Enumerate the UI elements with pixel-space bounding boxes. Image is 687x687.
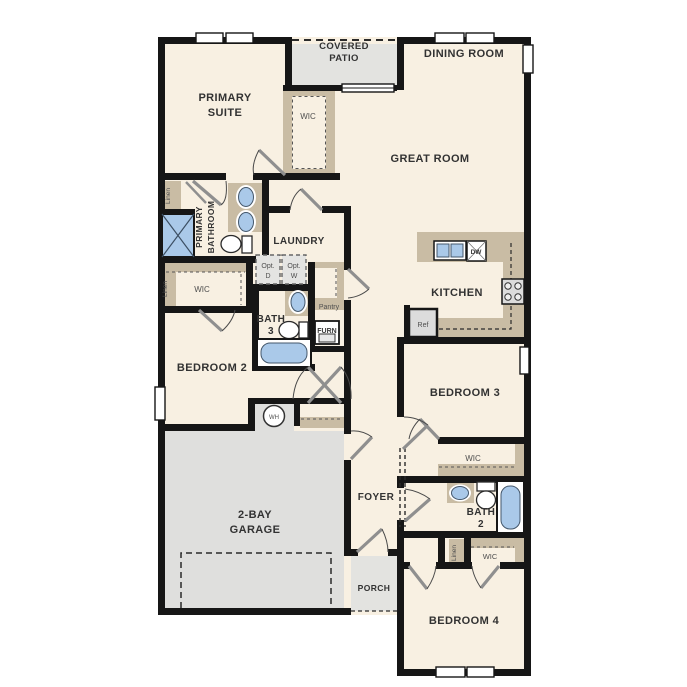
kitchen-counter-bottom [438, 318, 504, 337]
label-linen-wic2: Linen [162, 281, 169, 297]
label-garage-1: 2-BAY [238, 509, 272, 521]
label-primary-bathroom-2: BATHROOM [206, 201, 216, 254]
bath3-sink [289, 290, 308, 314]
wic3-side [515, 444, 524, 477]
window-dining-side [523, 45, 533, 73]
label-opt-washer-2: W [291, 273, 298, 280]
window-primary-2 [226, 33, 253, 43]
floor-plan: COVERED PATIO DINING ROOM GREAT ROOM PRI… [0, 0, 687, 687]
label-bath3-2: 3 [268, 326, 274, 337]
bath3-tub [257, 339, 311, 367]
label-garage-2: GARAGE [230, 524, 281, 536]
hall-closet-interior [300, 404, 344, 418]
window-primary-1 [196, 33, 223, 43]
primary-wic-interior [292, 96, 326, 169]
floor-plan-svg: COVERED PATIO DINING ROOM GREAT ROOM PRI… [0, 0, 687, 687]
label-bedroom4: BEDROOM 4 [429, 615, 500, 627]
primary-toilet [221, 236, 252, 254]
label-laundry: LAUNDRY [273, 236, 324, 247]
label-bath3-1: BATH [257, 314, 286, 325]
window-dining-2 [466, 33, 494, 43]
label-primary-suite-2: SUITE [208, 107, 242, 119]
pantry-interior [315, 268, 337, 298]
bath2-toilet [477, 482, 496, 509]
label-opt-dryer-2: D [265, 273, 270, 280]
label-water-heater: WH [269, 415, 279, 421]
window-bedroom4-2 [467, 667, 494, 677]
primary-shower [162, 214, 194, 257]
label-porch: PORCH [358, 583, 391, 593]
label-pantry: Pantry [319, 304, 340, 311]
bath2-sink [449, 485, 471, 502]
patio-slider [342, 84, 394, 92]
label-linen-hall: Linen [451, 545, 458, 561]
window-dining-1 [435, 33, 464, 43]
wic3-shelf-band [438, 464, 515, 477]
kitchen-sink [434, 241, 466, 260]
label-bath2-2: 2 [478, 519, 484, 530]
label-linen-primary: Linen [165, 188, 172, 204]
label-dining-room: DINING ROOM [424, 48, 504, 60]
label-covered-patio-1: COVERED [319, 41, 369, 52]
label-wic4: WIC [483, 552, 498, 561]
label-great-room: GREAT ROOM [391, 153, 470, 165]
wic2-shelf-band [165, 263, 246, 272]
label-bedroom3: BEDROOM 3 [430, 387, 500, 399]
label-bath2-1: BATH [467, 507, 496, 518]
label-covered-patio-2: PATIO [329, 53, 359, 64]
label-furnace: FURN [317, 328, 336, 335]
label-primary-bathroom-1: PRIMARY [194, 206, 204, 248]
label-opt-washer-1: Opt. [287, 263, 300, 270]
label-dishwasher: DW [471, 249, 483, 256]
label-primary-suite-1: PRIMARY [198, 92, 251, 104]
label-opt-dryer-1: Opt. [261, 263, 274, 270]
label-kitchen: KITCHEN [431, 287, 483, 299]
label-wic3: WIC [465, 454, 481, 463]
window-bedroom4-1 [436, 667, 465, 677]
stove [502, 279, 524, 304]
label-bedroom2: BEDROOM 2 [177, 362, 247, 374]
label-foyer: FOYER [358, 492, 395, 503]
label-refrigerator: Ref [418, 322, 429, 329]
bath2-tub [497, 481, 524, 533]
label-primary-wic: WIC [300, 112, 316, 121]
window-bedroom3 [520, 347, 529, 374]
label-wic2: WIC [194, 285, 210, 294]
window-bedroom2 [155, 387, 165, 420]
